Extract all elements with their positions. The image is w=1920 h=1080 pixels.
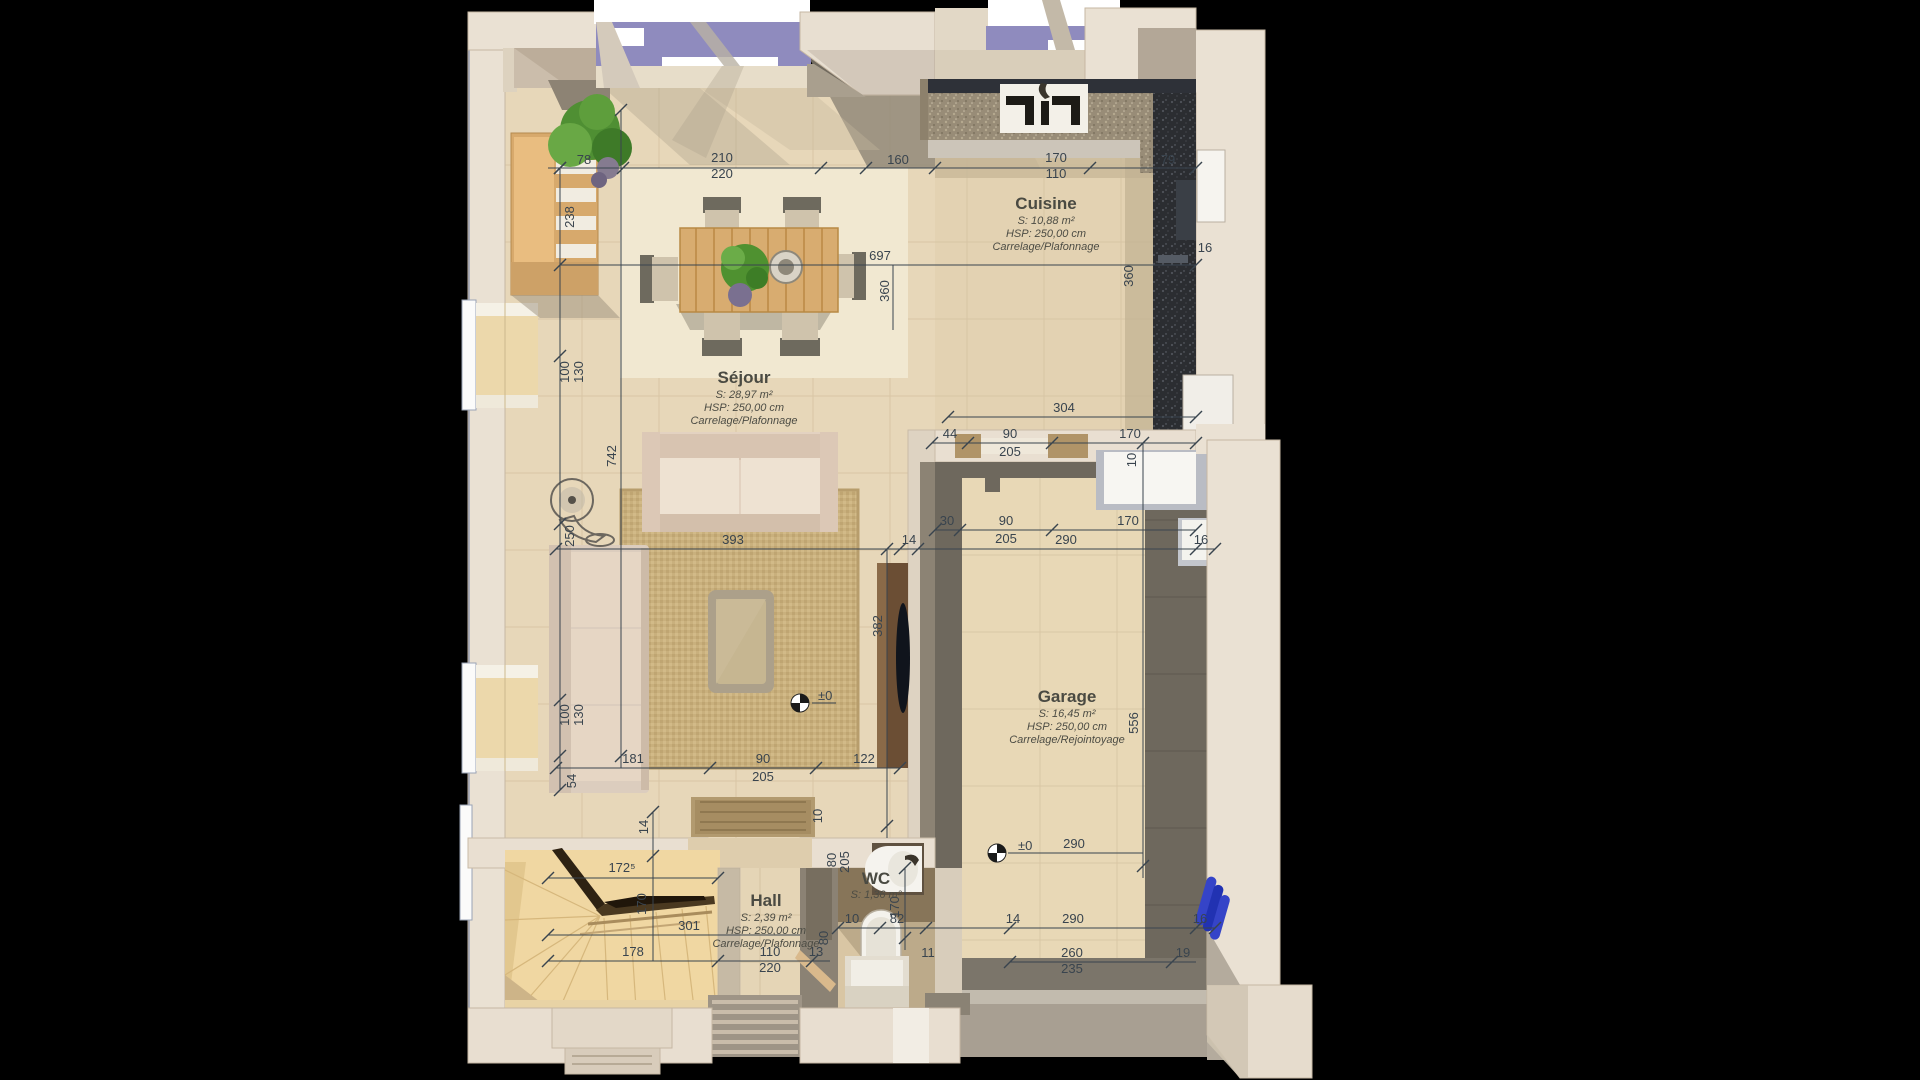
svg-text:Carrelage/Plafonnage: Carrelage/Plafonnage	[992, 241, 1099, 253]
svg-text:181: 181	[622, 751, 644, 766]
svg-text:382: 382	[870, 615, 885, 637]
svg-text:Carrelage/Plafonnage: Carrelage/Plafonnage	[690, 415, 797, 427]
svg-text:205: 205	[752, 769, 774, 784]
svg-text:10: 10	[1124, 453, 1139, 467]
svg-text:S: 28,97 m²: S: 28,97 m²	[716, 389, 773, 401]
svg-text:556: 556	[1126, 712, 1141, 734]
svg-text:170: 170	[1119, 426, 1141, 441]
svg-text:Carrelage/Rejointoyage: Carrelage/Rejointoyage	[1009, 734, 1125, 746]
svg-text:210: 210	[711, 150, 733, 165]
svg-text:10: 10	[810, 809, 825, 823]
svg-text:HSP: 250,00 cm: HSP: 250,00 cm	[1006, 228, 1086, 240]
svg-text:290: 290	[1055, 532, 1077, 547]
svg-text:178: 178	[622, 944, 644, 959]
svg-text:110: 110	[1046, 166, 1067, 181]
svg-text:205: 205	[999, 444, 1021, 459]
svg-text:Cuisine: Cuisine	[1015, 194, 1076, 213]
svg-text:100: 100	[557, 704, 572, 726]
svg-text:304: 304	[1053, 400, 1075, 415]
svg-text:Hall: Hall	[750, 891, 781, 910]
svg-text:HSP: 250,00 cm: HSP: 250,00 cm	[726, 925, 806, 937]
svg-text:220: 220	[759, 960, 781, 975]
svg-text:14: 14	[1006, 911, 1020, 926]
svg-text:290: 290	[1063, 836, 1085, 851]
svg-text:10: 10	[845, 911, 859, 926]
svg-text:S: 10,88 m²: S: 10,88 m²	[1018, 215, 1075, 227]
svg-text:301: 301	[678, 918, 700, 933]
svg-text:122: 122	[853, 751, 875, 766]
svg-text:54: 54	[564, 774, 579, 788]
svg-text:±0: ±0	[818, 688, 832, 703]
svg-text:78: 78	[577, 152, 591, 167]
svg-text:170: 170	[1045, 150, 1067, 165]
svg-text:S: 16,45 m²: S: 16,45 m²	[1039, 708, 1096, 720]
svg-text:90: 90	[756, 751, 770, 766]
svg-text:19: 19	[1176, 945, 1190, 960]
svg-text:238: 238	[562, 206, 577, 228]
svg-text:S: 1,36 m²: S: 1,36 m²	[851, 889, 902, 901]
svg-text:±0: ±0	[1018, 838, 1032, 853]
svg-text:170: 170	[634, 893, 649, 915]
svg-text:360: 360	[1121, 265, 1136, 287]
svg-text:393: 393	[722, 532, 744, 547]
svg-text:16: 16	[1194, 532, 1208, 547]
svg-text:14: 14	[636, 820, 651, 834]
svg-text:250: 250	[562, 525, 577, 547]
svg-text:90: 90	[1003, 426, 1017, 441]
svg-text:130: 130	[571, 704, 586, 726]
svg-text:100: 100	[557, 361, 572, 383]
svg-text:WC: WC	[862, 869, 890, 888]
svg-text:Séjour: Séjour	[718, 368, 771, 387]
svg-text:14: 14	[902, 532, 916, 547]
svg-text:44: 44	[943, 426, 957, 441]
svg-text:16: 16	[1193, 911, 1207, 926]
svg-text:160: 160	[887, 152, 909, 167]
svg-text:11: 11	[921, 945, 935, 960]
svg-text:16: 16	[1198, 240, 1212, 255]
svg-text:Garage: Garage	[1038, 687, 1097, 706]
svg-text:360: 360	[877, 280, 892, 302]
svg-text:79: 79	[1161, 152, 1175, 167]
svg-text:220: 220	[711, 166, 733, 181]
svg-text:290: 290	[1062, 911, 1084, 926]
svg-text:30: 30	[940, 513, 954, 528]
svg-text:205: 205	[837, 851, 852, 873]
svg-text:205: 205	[995, 531, 1017, 546]
svg-text:260: 260	[1061, 945, 1083, 960]
svg-text:90: 90	[999, 513, 1013, 528]
svg-text:742: 742	[604, 445, 619, 467]
svg-text:697: 697	[869, 248, 891, 263]
svg-text:HSP: 250,00 cm: HSP: 250,00 cm	[1027, 721, 1107, 733]
svg-text:S: 2,39 m²: S: 2,39 m²	[741, 912, 792, 924]
svg-text:170: 170	[1117, 513, 1139, 528]
svg-text:Carrelage/Plafonnage: Carrelage/Plafonnage	[712, 938, 819, 950]
svg-text:235: 235	[1061, 961, 1083, 976]
svg-text:172⁵: 172⁵	[608, 860, 635, 875]
svg-text:130: 130	[571, 361, 586, 383]
svg-text:HSP: 250,00 cm: HSP: 250,00 cm	[704, 402, 784, 414]
